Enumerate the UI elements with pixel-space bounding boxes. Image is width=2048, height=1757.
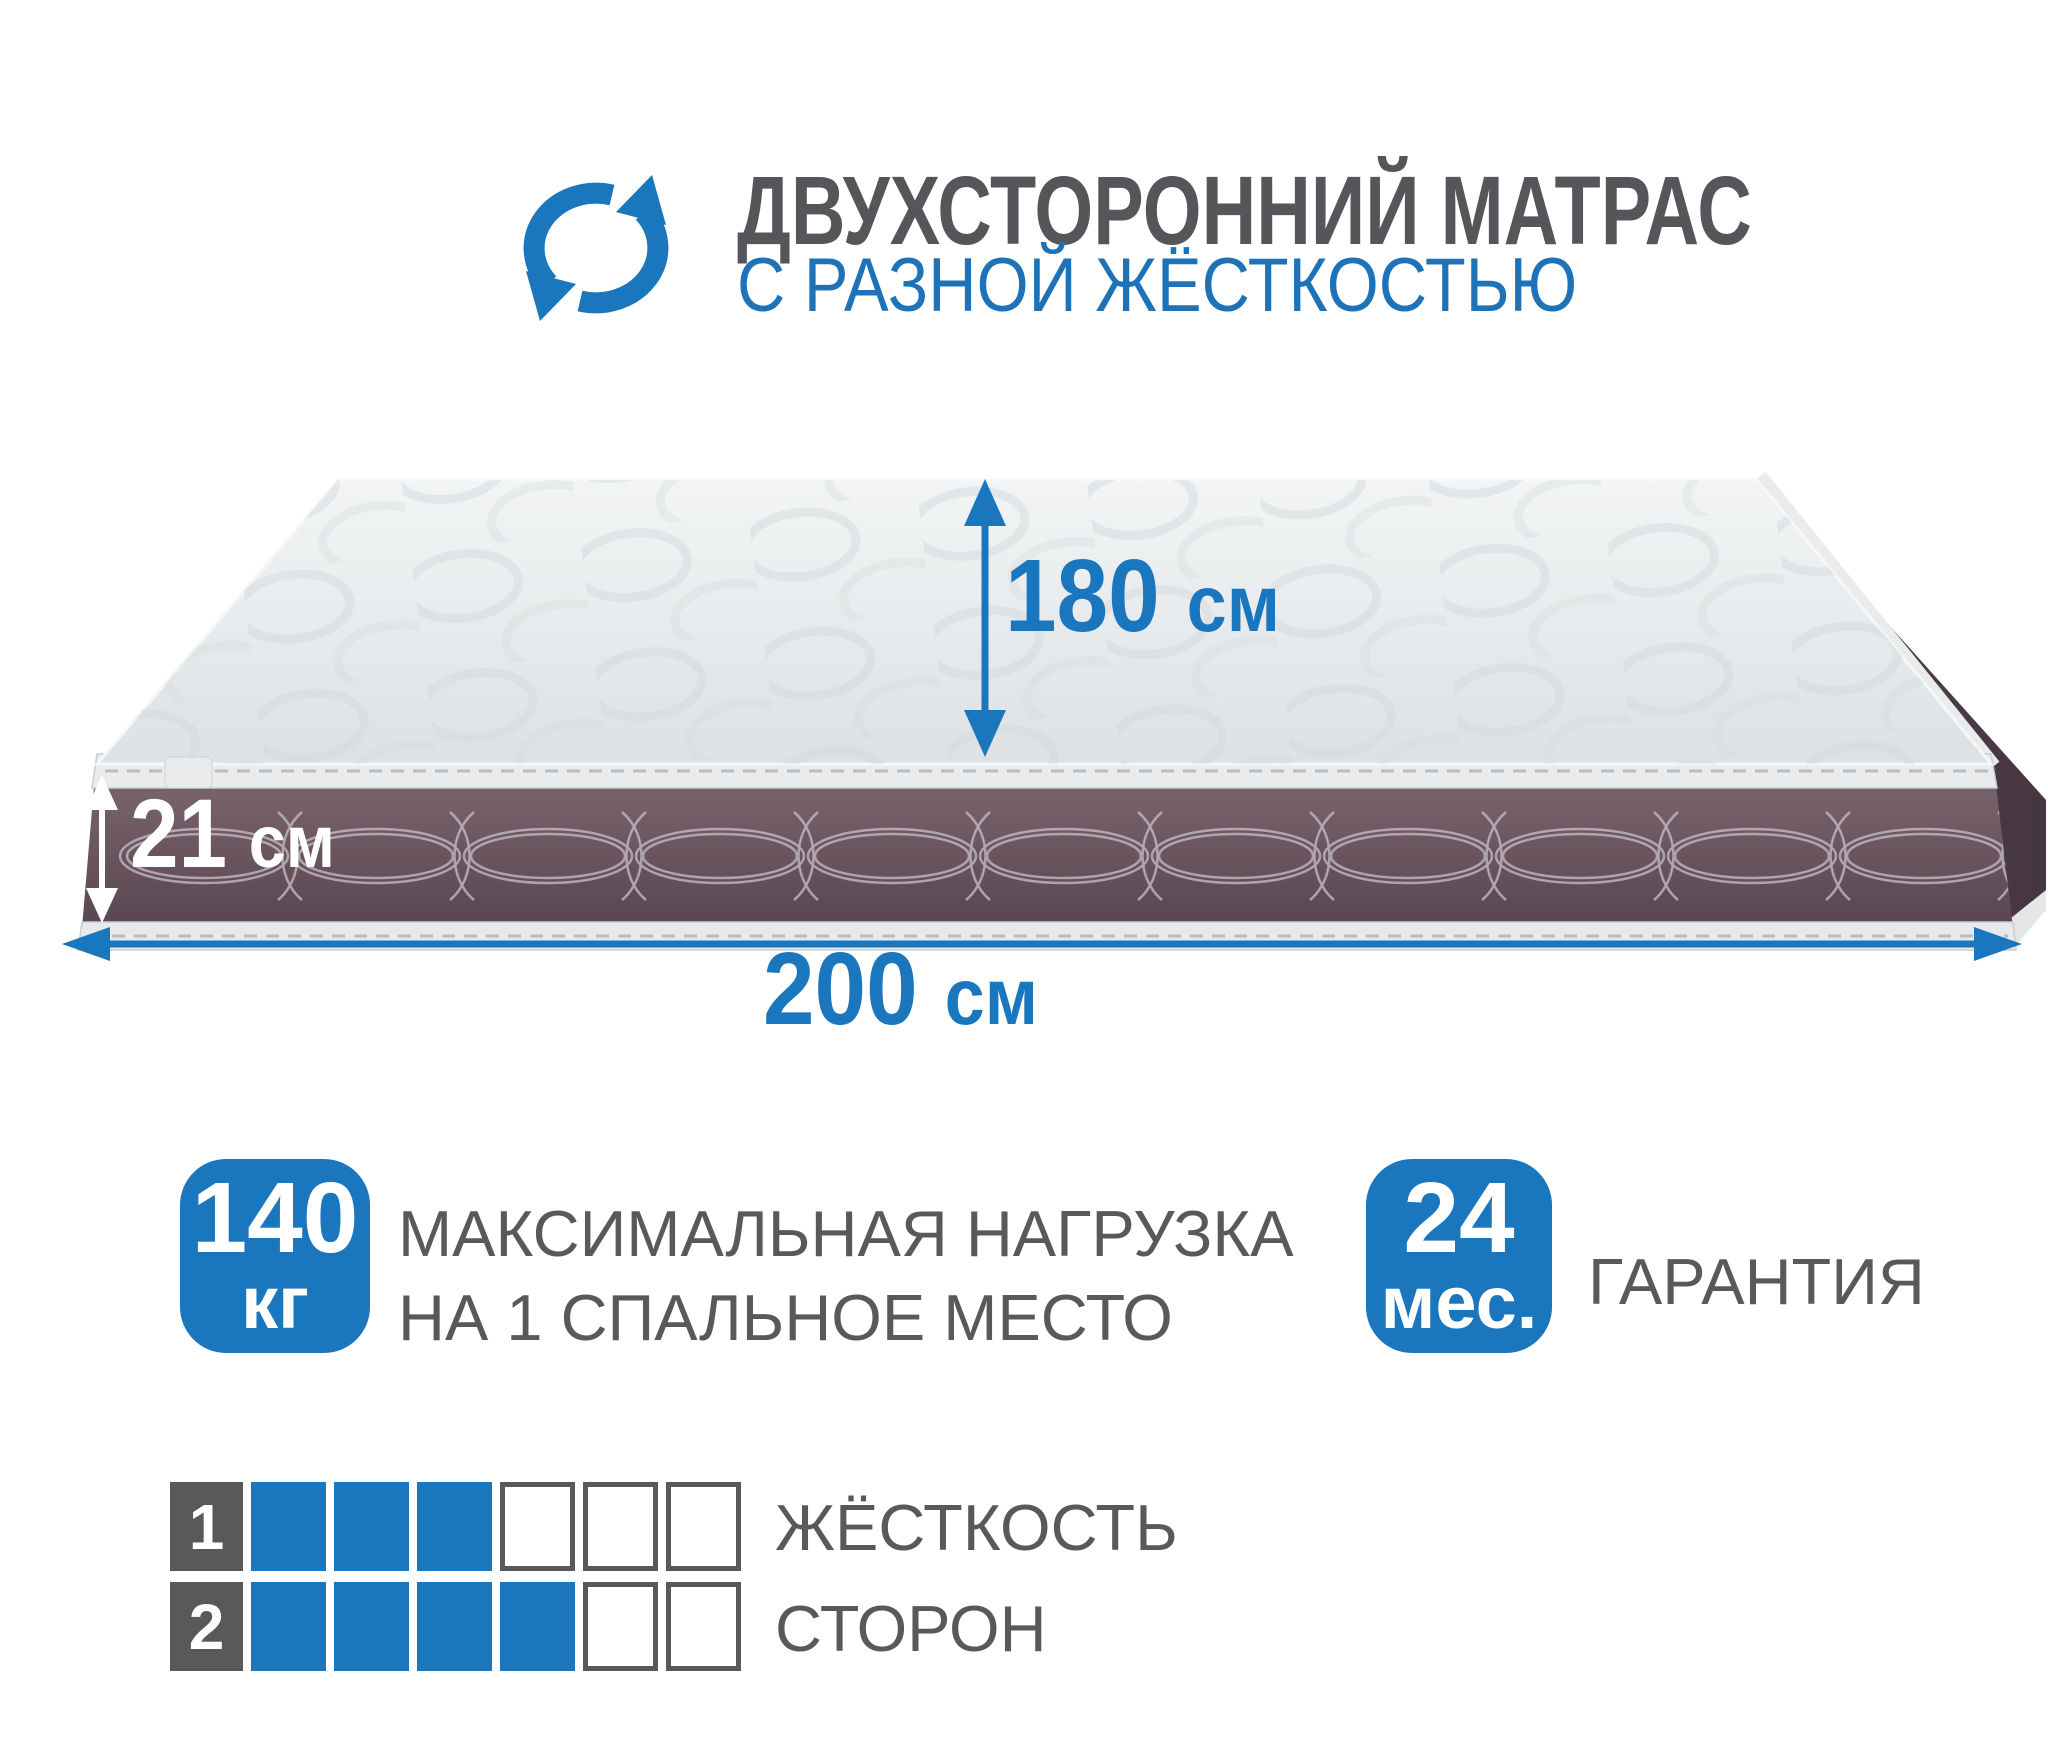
firmness-row-side-1: 1	[170, 1482, 741, 1571]
max-load-badge: 140 кг	[180, 1159, 370, 1353]
firmness-caption-line2: СТОРОН	[775, 1596, 1047, 1661]
length-unit: см	[945, 957, 1038, 1037]
firmness-caption-line1: ЖЁСТКОСТЬ	[775, 1495, 1178, 1560]
firmness-cell-empty	[500, 1482, 575, 1571]
warranty-unit: мес.	[1381, 1266, 1538, 1340]
firmness-row-side-2: 2	[170, 1582, 741, 1671]
firmness-side-label: 1	[170, 1482, 243, 1571]
max-load-caption-line2: НА 1 СПАЛЬНОЕ МЕСТО	[398, 1276, 1294, 1360]
length-value: 200	[763, 937, 918, 1040]
width-label: 180 см	[1005, 544, 1280, 647]
max-load-caption-line1: МАКСИМАЛЬНАЯ НАГРУЗКА	[398, 1192, 1294, 1276]
firmness-cell-filled	[417, 1482, 492, 1571]
firmness-side-label: 2	[170, 1582, 243, 1671]
thickness-value: 21	[130, 785, 227, 882]
firmness-cell-filled	[251, 1582, 326, 1671]
firmness-cell-filled	[500, 1582, 575, 1671]
firmness-cell-empty	[666, 1582, 741, 1671]
length-label: 200 см	[763, 937, 1038, 1040]
max-load-caption: МАКСИМАЛЬНАЯ НАГРУЗКА НА 1 СПАЛЬНОЕ МЕСТ…	[398, 1192, 1294, 1360]
thickness-label: 21 см	[130, 785, 335, 882]
warranty-badge: 24 мес.	[1366, 1159, 1552, 1353]
max-load-unit: кг	[241, 1266, 309, 1340]
width-value: 180	[1005, 544, 1160, 647]
firmness-cell-filled	[334, 1482, 409, 1571]
firmness-cell-empty	[666, 1482, 741, 1571]
warranty-value: 24	[1403, 1172, 1514, 1264]
firmness-cell-filled	[334, 1582, 409, 1671]
firmness-cell-empty	[583, 1582, 658, 1671]
firmness-cell-empty	[583, 1482, 658, 1571]
width-unit: см	[1187, 564, 1280, 644]
mattress-side-band	[82, 786, 2013, 928]
thickness-unit: см	[249, 805, 335, 879]
max-load-value: 140	[192, 1172, 359, 1264]
firmness-cell-filled	[251, 1482, 326, 1571]
warranty-caption: ГАРАНТИЯ	[1588, 1240, 1925, 1324]
firmness-cell-filled	[417, 1582, 492, 1671]
mattress-infographic: ДВУХСТОРОННИЙ МАТРАС С РАЗНОЙ ЖЁСТКОСТЬЮ	[0, 0, 2048, 1757]
